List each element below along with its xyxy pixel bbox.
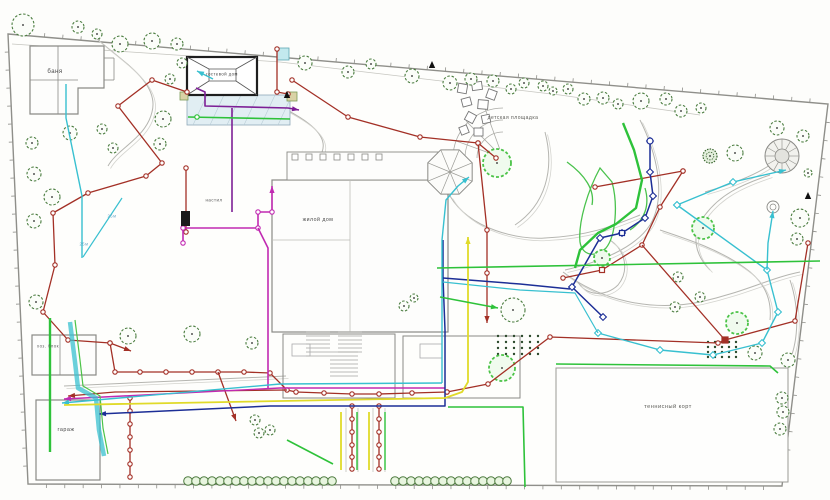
tree-center — [96, 33, 98, 35]
lamp-node — [322, 391, 326, 395]
hedge-row — [415, 477, 424, 486]
junction-node — [620, 231, 625, 236]
hedge-row — [184, 477, 193, 486]
hedge-row — [224, 477, 233, 486]
orchard-planting — [513, 341, 515, 343]
lamp-node — [377, 467, 381, 471]
playground-equipment — [457, 83, 467, 93]
lamp-node — [270, 210, 274, 214]
hedge-row — [232, 477, 241, 486]
lamp-node — [275, 90, 279, 94]
tree-center — [191, 333, 193, 335]
lamp-node — [128, 435, 132, 439]
tree-center — [254, 419, 256, 421]
lamp-node — [150, 78, 154, 82]
tree-center — [674, 306, 676, 308]
hedge-row — [328, 477, 337, 486]
orchard-planting — [721, 346, 723, 348]
tree-center — [370, 63, 372, 65]
orchard-planting — [513, 353, 515, 355]
electrical-cabinet — [181, 211, 190, 226]
tree-center — [781, 397, 783, 399]
lamp-node — [418, 135, 422, 139]
tree-center — [22, 24, 24, 26]
hedge-row — [256, 477, 265, 486]
tree-center — [151, 40, 153, 42]
tree-center — [700, 107, 702, 109]
lamp-node — [128, 462, 132, 466]
lamp-node — [128, 475, 132, 479]
hedge-row — [200, 477, 209, 486]
stone-plaza-center — [775, 149, 789, 163]
orchard-planting — [505, 347, 507, 349]
lamp-node — [716, 341, 720, 345]
direction-marker — [429, 61, 435, 68]
tree-center — [51, 196, 53, 198]
lamp-node — [350, 443, 354, 447]
hedge-row — [216, 477, 225, 486]
lamp-node — [476, 141, 480, 145]
orchard-planting — [728, 346, 730, 348]
tree-center — [510, 88, 512, 90]
tree-center — [782, 411, 784, 413]
label-garage: гараж — [58, 427, 75, 433]
lamp-node — [128, 448, 132, 452]
lamp-node — [350, 417, 354, 421]
lamp-node — [51, 211, 55, 215]
hedge-row — [479, 477, 488, 486]
label-utility-block: хоз. блок — [37, 344, 59, 349]
playground-equipment — [461, 97, 472, 107]
lamp-node — [593, 185, 597, 189]
orchard-planting — [521, 341, 523, 343]
orchard-planting — [497, 335, 499, 337]
tree-center — [501, 367, 503, 369]
hedge-row — [264, 477, 273, 486]
hedge-row — [487, 477, 496, 486]
tree-center — [101, 128, 103, 130]
tree-center — [583, 98, 585, 100]
lamp-node — [181, 226, 185, 230]
junction-node — [722, 337, 728, 343]
lamp-node — [350, 467, 354, 471]
label-house: жилой дом — [303, 217, 334, 223]
tree-center — [779, 428, 781, 430]
tree-center — [258, 432, 260, 434]
lamp-node — [294, 390, 298, 394]
tree-center — [699, 296, 701, 298]
hedge-row — [407, 477, 416, 486]
tree-center — [181, 62, 183, 64]
hedge-row — [391, 477, 400, 486]
lamp-node — [181, 241, 185, 245]
label-length-1: 25м — [107, 214, 116, 219]
junction-node — [600, 268, 605, 273]
lamp-node — [128, 422, 132, 426]
veranda-column — [362, 154, 368, 160]
tree-center — [512, 309, 514, 311]
tree-center — [677, 276, 679, 278]
orchard-planting — [505, 341, 507, 343]
orchard-planting — [707, 351, 709, 353]
lamp-node — [41, 310, 45, 314]
tree-center — [802, 135, 804, 137]
lamp-node — [681, 169, 685, 173]
lamp-node — [561, 276, 565, 280]
tree-center — [680, 110, 682, 112]
orchard-planting — [728, 356, 730, 358]
veranda-column — [376, 154, 382, 160]
lamp-node — [410, 391, 414, 395]
tree-center — [112, 147, 114, 149]
orchard-planting — [505, 335, 507, 337]
tree-center — [709, 155, 711, 157]
hedge-row — [208, 477, 217, 486]
hedge-row — [455, 477, 464, 486]
orchard-planting — [521, 347, 523, 349]
veranda-column — [306, 154, 312, 160]
orchard-planting — [505, 353, 507, 355]
building-garage — [36, 400, 100, 480]
orchard-planting — [714, 346, 716, 348]
orchard-planting — [497, 341, 499, 343]
hedge-row — [280, 477, 289, 486]
tree-center — [347, 71, 349, 73]
lamp-node — [486, 382, 490, 386]
tree-center — [799, 217, 801, 219]
hedge-row — [320, 477, 329, 486]
orchard-planting — [529, 335, 531, 337]
hedge-row — [447, 477, 456, 486]
tree-center — [119, 43, 121, 45]
veranda-column — [348, 154, 354, 160]
lamp-node — [242, 370, 246, 374]
veranda-column — [292, 154, 298, 160]
tree-center — [470, 78, 472, 80]
label-decking: настил — [205, 198, 222, 203]
lamp-node — [658, 205, 662, 209]
tree-center — [736, 322, 738, 324]
orchard-planting — [513, 335, 515, 337]
orchard-planting — [707, 356, 709, 358]
hedge-row — [240, 477, 249, 486]
tree-center — [159, 143, 161, 145]
tree-center — [776, 127, 778, 129]
tree-center — [601, 257, 603, 259]
lamp-node — [86, 191, 90, 195]
lamp-node — [275, 47, 279, 51]
tree-center — [251, 342, 253, 344]
tree-center — [523, 82, 525, 84]
hedge-row — [272, 477, 281, 486]
hedge-row — [503, 477, 512, 486]
orchard-planting — [735, 341, 737, 343]
orchard-planting — [537, 353, 539, 355]
lamp-node — [377, 455, 381, 459]
veranda-column — [320, 154, 326, 160]
orchard-planting — [521, 353, 523, 355]
orchard-planting — [521, 335, 523, 337]
orchard-planting — [735, 351, 737, 353]
lamp-node — [350, 392, 354, 396]
label-tennis-court: теннисный корт — [644, 404, 692, 410]
tree-center — [496, 162, 498, 164]
lamp-node — [164, 370, 168, 374]
playground-equipment — [478, 100, 489, 110]
lamp-node — [190, 370, 194, 374]
tree-center — [127, 335, 129, 337]
lamp-node — [184, 166, 188, 170]
tree-center — [411, 75, 413, 77]
lamp-node — [184, 230, 188, 234]
orchard-planting — [513, 347, 515, 349]
site-plan-canvas — [0, 0, 830, 500]
tennis-court — [556, 368, 788, 482]
junction-node — [195, 115, 199, 119]
tree-center — [787, 359, 789, 361]
lamp-node — [185, 90, 189, 94]
lamp-node — [377, 430, 381, 434]
veranda-column — [334, 154, 340, 160]
orchard-planting — [735, 346, 737, 348]
lamp-node — [377, 417, 381, 421]
hedge-row — [463, 477, 472, 486]
tree-center — [413, 297, 415, 299]
tree-center — [617, 103, 619, 105]
tree-center — [449, 82, 451, 84]
lamp-node — [377, 443, 381, 447]
lamp-node — [66, 338, 70, 342]
tree-center — [33, 173, 35, 175]
lamp-node — [350, 455, 354, 459]
playground-equipment — [474, 128, 483, 136]
hedge-row — [399, 477, 408, 486]
lamp-node — [346, 115, 350, 119]
tree-center — [754, 352, 756, 354]
tree-center — [665, 98, 667, 100]
tree-center — [542, 85, 544, 87]
tree-center — [169, 78, 171, 80]
hedge-row — [192, 477, 201, 486]
tree-center — [807, 172, 809, 174]
orchard-planting — [537, 341, 539, 343]
label-guest-house: гостевой дом — [206, 72, 238, 77]
label-banya: баня — [47, 69, 62, 75]
label-length-2: 25м — [79, 242, 88, 247]
tree-center — [602, 97, 604, 99]
tree-center — [734, 152, 736, 154]
tree-center — [35, 301, 37, 303]
tree-center — [796, 238, 798, 240]
lamp-node — [256, 210, 260, 214]
hedge-row — [296, 477, 305, 486]
lamp-node — [116, 104, 120, 108]
orchard-planting — [529, 341, 531, 343]
lamp-node — [108, 341, 112, 345]
orchard-planting — [707, 346, 709, 348]
hedge-row — [312, 477, 321, 486]
lamp-node — [806, 241, 810, 245]
lamp-node — [160, 161, 164, 165]
hedge-row — [471, 477, 480, 486]
lamp-node — [377, 392, 381, 396]
label-playground: детская площадка — [488, 115, 539, 121]
lamp-node — [138, 370, 142, 374]
building-main-house — [272, 180, 448, 332]
tree-center — [176, 43, 178, 45]
tree-center — [77, 26, 79, 28]
lamp-node — [485, 271, 489, 275]
tree-center — [403, 305, 405, 307]
hedge-row — [439, 477, 448, 486]
tree-center — [269, 429, 271, 431]
tree-center — [492, 80, 494, 82]
site-plan: баня гостевой дом детская площадка жилой… — [0, 0, 830, 500]
lamp-node — [290, 78, 294, 82]
orchard-planting — [537, 335, 539, 337]
orchard-planting — [735, 356, 737, 358]
hedge-row — [288, 477, 297, 486]
hedge-row — [304, 477, 313, 486]
tree-center — [33, 220, 35, 222]
orchard-planting — [497, 347, 499, 349]
lamp-node — [113, 370, 117, 374]
tree-center — [162, 118, 164, 120]
tree-center — [567, 88, 569, 90]
lamp-node — [793, 319, 797, 323]
tree-center — [31, 142, 33, 144]
lamp-node — [350, 430, 354, 434]
hedge-row — [248, 477, 257, 486]
orchard-planting — [721, 356, 723, 358]
hedge-row — [431, 477, 440, 486]
hedge-row — [423, 477, 432, 486]
tree-center — [552, 90, 554, 92]
tree-center — [702, 227, 704, 229]
lamp-node — [53, 263, 57, 267]
orchard-planting — [529, 347, 531, 349]
tree-center — [304, 62, 306, 64]
hedge-row — [495, 477, 504, 486]
tree-center — [640, 100, 642, 102]
lamp-node — [485, 228, 489, 232]
lamp-node — [144, 174, 148, 178]
terrace-deck — [187, 95, 290, 125]
lamp-node — [494, 156, 498, 160]
lamp-node — [548, 335, 552, 339]
junction-node — [647, 138, 653, 144]
